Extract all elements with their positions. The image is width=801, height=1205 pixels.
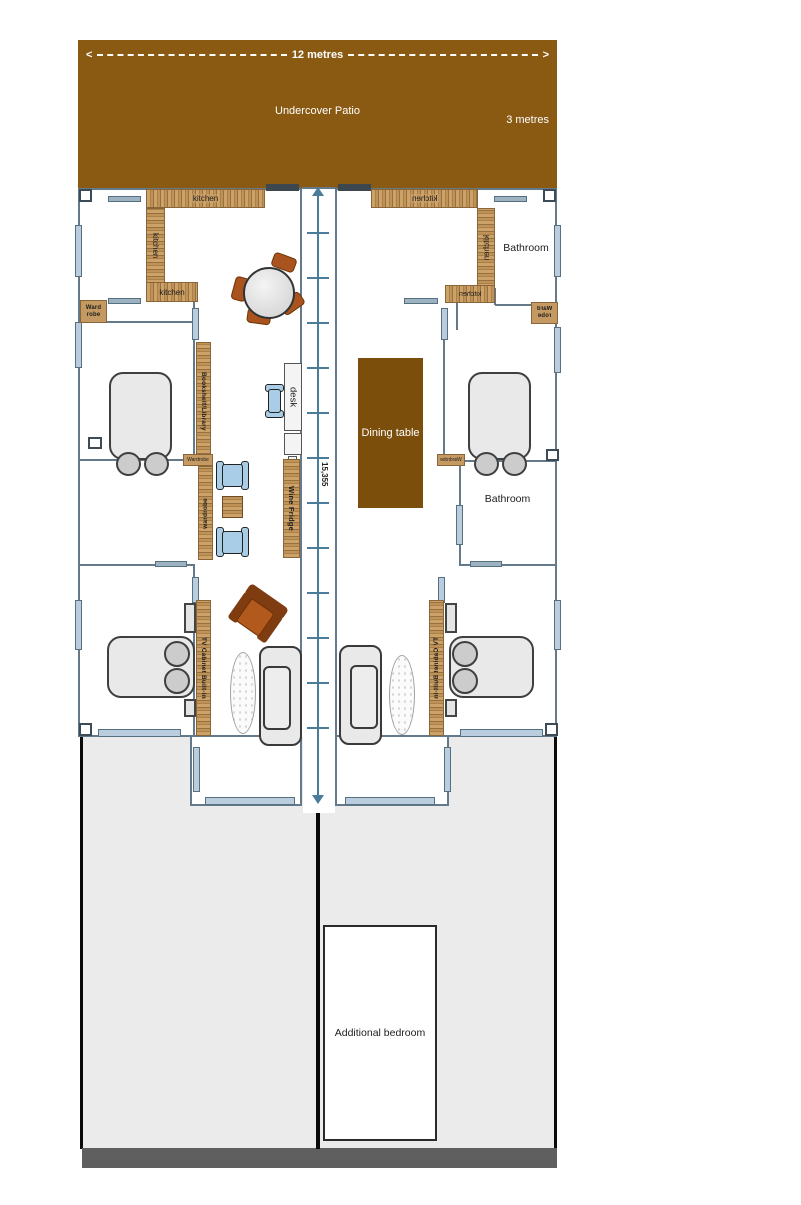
desk: desk	[284, 363, 302, 431]
dimension-tick	[307, 322, 329, 324]
wall	[456, 303, 458, 330]
dimension-tick	[307, 727, 329, 729]
arrow-right-icon: >	[543, 49, 549, 61]
desk-label: desk	[288, 387, 299, 407]
wardrobe-box-label: Ward robe	[81, 305, 106, 318]
wardrobe-strip: wardrobe	[198, 466, 213, 560]
right-living-extension	[335, 737, 449, 806]
additional-bedroom-label: Additional bedroom	[335, 1027, 425, 1039]
door	[155, 561, 187, 567]
dimension-arrow-up-icon	[312, 187, 324, 196]
chair-seat	[268, 389, 281, 413]
bedside-table	[445, 699, 457, 717]
dimension-label: 15,355	[320, 462, 329, 486]
window	[460, 729, 543, 737]
patio-label: Undercover Patio	[78, 104, 557, 118]
dimension-tick	[307, 412, 329, 414]
backyard-center-divider	[316, 813, 320, 1149]
tv-cabinet-label: TV Cabinet Built-in	[433, 637, 440, 699]
pillow	[164, 641, 190, 667]
patio-door	[266, 184, 299, 191]
dimension-line	[307, 190, 329, 801]
wall-corner-box	[79, 189, 92, 202]
kitchen-label: kitchen	[459, 291, 481, 298]
sofa-cushion	[350, 665, 378, 729]
sofa	[259, 646, 302, 746]
chair-seat	[222, 531, 243, 554]
bed	[468, 372, 531, 460]
dimension-tick	[307, 637, 329, 639]
wardrobe-box: Ward robe	[531, 302, 558, 324]
patio-door	[338, 184, 371, 191]
wardrobe-tag: Wardrobe	[437, 454, 465, 466]
window	[554, 225, 561, 277]
window	[192, 308, 199, 340]
sofa-cushion	[263, 666, 291, 730]
rug-oval	[230, 652, 256, 734]
wardrobe-tag: Wardrobe	[183, 454, 213, 466]
dimension-tick	[307, 502, 329, 504]
window	[554, 327, 561, 373]
bedside-table	[184, 699, 196, 717]
bed	[109, 372, 172, 460]
wardrobe-box-label: Ward robe	[532, 306, 557, 319]
window	[75, 600, 82, 650]
kitchen-counter: kitchen	[146, 189, 265, 208]
bookshelf-label: Bookshelf/Library	[200, 372, 207, 431]
kitchen-label: kitchen	[151, 233, 160, 258]
dimension-tick	[307, 277, 329, 279]
dimension-rule	[317, 194, 319, 795]
floor-plan: < 12 metres > Undercover Patio 3 metres …	[0, 0, 801, 1205]
pillow	[164, 668, 190, 694]
pillow	[144, 452, 169, 476]
door	[108, 298, 141, 304]
kitchen-counter: kitchen	[477, 208, 495, 288]
window	[441, 308, 448, 340]
wardrobe-strip-label: wardrobe	[202, 498, 209, 529]
door	[470, 561, 502, 567]
window	[98, 729, 181, 737]
pillow	[116, 452, 141, 476]
wall-corner-box	[543, 189, 556, 202]
patio-width-label: 12 metres	[292, 49, 343, 61]
sofa	[339, 645, 382, 745]
coffee-table	[222, 496, 243, 518]
dining-table: Dining table	[358, 358, 423, 508]
wardrobe-tag-label: Wardrobe	[440, 457, 462, 463]
tv-cabinet-strip: TV Cabinet Built-in	[196, 600, 211, 736]
dimension-tick	[307, 367, 329, 369]
bathroom-label: Bathroom	[485, 493, 531, 505]
pillow	[452, 668, 478, 694]
chair-seat	[222, 464, 243, 487]
desk-return	[284, 433, 302, 455]
window	[456, 505, 463, 545]
wall	[495, 304, 531, 306]
pillow	[452, 641, 478, 667]
patio-depth-label: 3 metres	[506, 114, 549, 126]
kitchen-counter: kitchen	[146, 208, 165, 284]
window	[444, 747, 451, 792]
window	[193, 747, 200, 792]
backyard-bottom-bar	[82, 1148, 557, 1168]
dimension-tick	[307, 457, 329, 459]
door	[404, 298, 438, 304]
patio-area: < 12 metres > Undercover Patio 3 metres	[78, 40, 557, 188]
dimension-tick	[307, 232, 329, 234]
window	[75, 322, 82, 368]
additional-bedroom: Additional bedroom	[323, 925, 437, 1141]
bathroom-label: Bathroom	[503, 242, 549, 254]
dimension-dash-right	[348, 54, 537, 56]
arrow-left-icon: <	[86, 49, 92, 61]
wine-fridge-label: Wine Fridge	[287, 486, 296, 531]
backyard-right-border	[554, 737, 557, 1149]
wardrobe-tag-label: Wardrobe	[187, 457, 209, 463]
kitchen-counter: kitchen	[371, 189, 478, 208]
wall-corner-box	[546, 449, 559, 461]
patio-width-dimension: < 12 metres >	[86, 48, 549, 62]
armchair-blue	[216, 461, 249, 490]
window	[75, 225, 82, 277]
window	[205, 797, 295, 805]
wall-corner-box	[88, 437, 102, 449]
door	[494, 196, 527, 202]
wall-corner-box	[545, 723, 558, 736]
kitchen-label: kitchen	[191, 194, 220, 203]
armchair-blue	[216, 527, 249, 557]
window	[345, 797, 435, 805]
dimension-tick	[307, 592, 329, 594]
round-table	[243, 267, 295, 319]
bedside-table	[184, 603, 196, 633]
tv-cabinet-label: TV Cabinet Built-in	[200, 637, 207, 699]
bookshelf-strip: Bookshelf/Library	[196, 342, 211, 461]
desk-chair	[265, 384, 284, 418]
dimension-dash-left	[97, 54, 286, 56]
dining-table-label: Dining table	[361, 427, 419, 439]
tv-cabinet-strip: TV Cabinet Built-in	[429, 600, 444, 736]
backyard-left-border	[80, 737, 83, 1149]
dimension-tick	[307, 682, 329, 684]
left-living-extension	[190, 737, 302, 806]
bathroom-upper-label: Bathroom	[497, 241, 555, 254]
wine-fridge-strip: Wine Fridge	[283, 459, 300, 558]
kitchen-label: kitchen	[159, 288, 184, 297]
door	[108, 196, 141, 202]
kitchen-label: kitchen	[410, 194, 439, 203]
window	[554, 600, 561, 650]
wardrobe-box: Ward robe	[80, 300, 107, 323]
pillow	[474, 452, 499, 476]
wall-corner-box	[79, 723, 92, 736]
dimension-arrow-down-icon	[312, 795, 324, 804]
bathroom-mid-label: Bathroom	[470, 492, 545, 506]
dimension-tick	[307, 547, 329, 549]
kitchen-label: kitchen	[482, 235, 491, 260]
kitchen-counter: kitchen	[445, 285, 495, 303]
wall	[443, 330, 445, 461]
rug-oval	[389, 655, 415, 735]
pillow	[502, 452, 527, 476]
bedside-table	[445, 603, 457, 633]
kitchen-counter: kitchen	[146, 282, 198, 302]
